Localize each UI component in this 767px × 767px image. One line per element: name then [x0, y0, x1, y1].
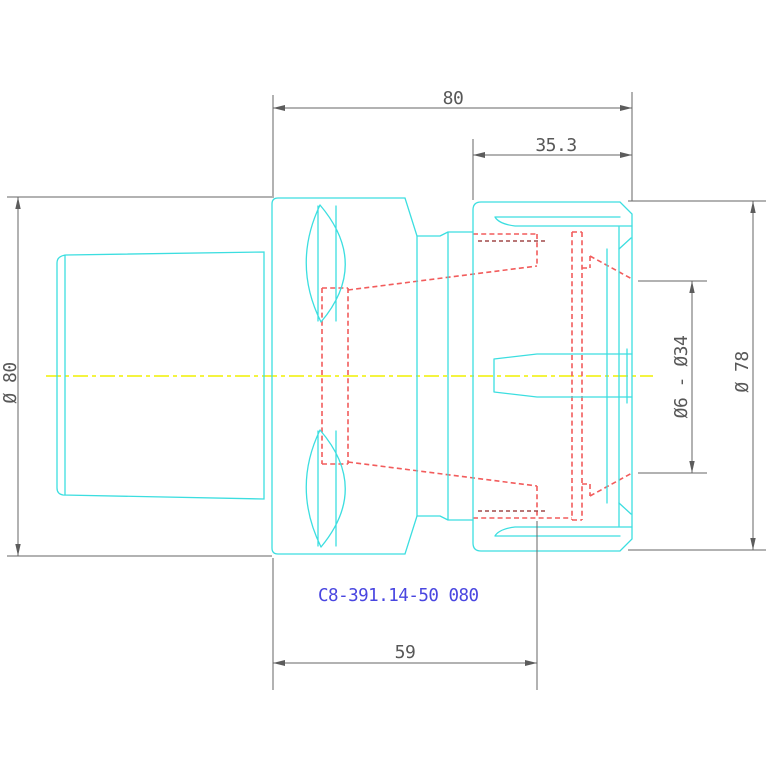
flange-slot-top — [306, 205, 345, 322]
dim-text-d80: Ø 80 — [0, 362, 21, 403]
dim-front-length: 35.3 — [473, 135, 632, 200]
dim-text-80: 80 — [443, 88, 464, 109]
flange-slot-bottom — [306, 430, 345, 547]
dim-text-collet-range: Ø6 - Ø34 — [671, 336, 692, 419]
dim-overall-length: 80 — [273, 88, 632, 201]
dim-text-59: 59 — [395, 642, 416, 663]
dim-text-d78: Ø 78 — [732, 351, 753, 392]
technical-drawing: 80 35.3 59 Ø 80 Ø 78 Ø6 - Ø34 C8-391.14-… — [0, 0, 767, 767]
dim-collet-capacity: Ø6 - Ø34 — [638, 281, 707, 473]
dim-text-35-3: 35.3 — [535, 135, 576, 156]
cad-viewport: 80 35.3 59 Ø 80 Ø 78 Ø6 - Ø34 C8-391.14-… — [0, 0, 767, 767]
part-number-label: C8-391.14-50 080 — [318, 586, 479, 606]
hidden-bore-lines — [322, 232, 632, 520]
